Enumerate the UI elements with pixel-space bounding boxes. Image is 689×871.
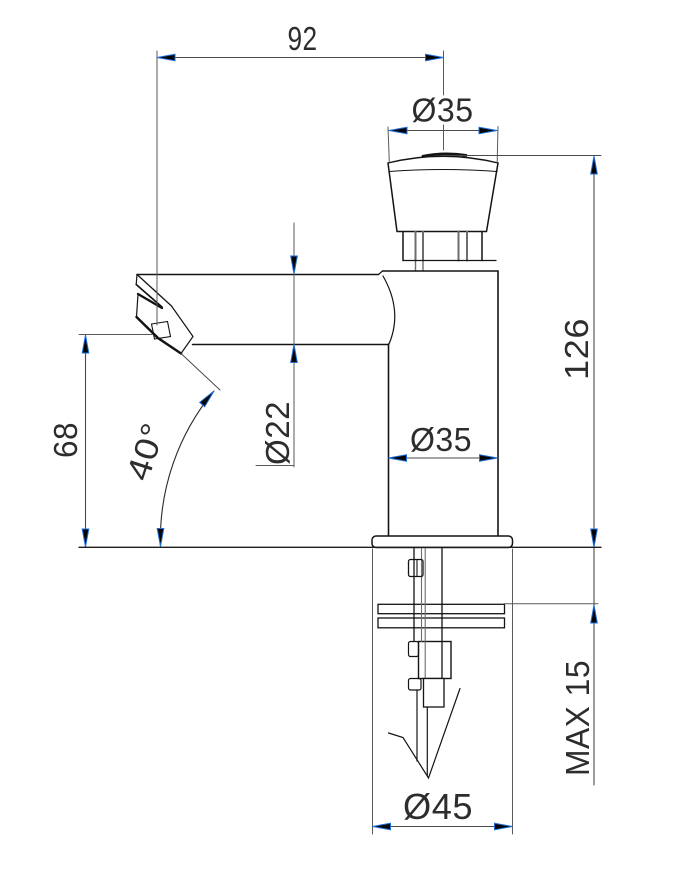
drawing-page: 92 Ø35 126 Ø22 (0, 0, 689, 871)
base-flange (372, 536, 513, 548)
arrowhead (200, 389, 217, 407)
spout-body-fillet (383, 276, 395, 344)
arrowhead (480, 455, 498, 462)
button-rim (389, 170, 497, 172)
valve-block (424, 679, 445, 708)
dim-body-diameter: Ø35 (389, 421, 498, 461)
spout (136, 275, 388, 354)
shank-clip (409, 560, 424, 577)
arrowhead (389, 455, 407, 462)
arrowhead (591, 156, 598, 174)
arrowhead (479, 127, 497, 134)
arrowhead (373, 823, 391, 830)
body-column (379, 271, 499, 536)
mounting-nut (419, 642, 452, 679)
push-button (388, 154, 498, 232)
dim-max-panel-thickness: MAX 15 (504, 604, 598, 776)
dimension-annotations: 92 Ø35 126 Ø22 (47, 20, 601, 834)
arrowhead (495, 823, 513, 830)
dim-width-92: 92 (157, 20, 444, 325)
dimension-label-max-15: MAX 15 (559, 660, 596, 776)
arrowhead (157, 529, 164, 547)
arrowhead (591, 529, 598, 547)
arrowhead (157, 54, 175, 61)
mounting-washer-top (378, 604, 505, 613)
mounting-washer-bottom (378, 618, 505, 628)
collar-slot-tails (416, 261, 424, 272)
dimension-label-body-diameter: Ø35 (410, 421, 472, 458)
aerator-left-edge (137, 294, 139, 317)
dimension-label-68: 68 (47, 422, 84, 458)
dim-button-diameter: Ø35 (388, 92, 498, 163)
button-dome (388, 156, 498, 163)
arrowhead (82, 529, 89, 547)
arrowhead (291, 256, 298, 274)
dimension-label-button-diameter: Ø35 (412, 92, 474, 129)
nut-side-tab-top (409, 642, 419, 657)
arrowhead (389, 127, 407, 134)
faucet-outline (136, 154, 512, 778)
arrowhead (591, 605, 598, 623)
under-deck-assembly (378, 548, 505, 778)
shoulder-chamfer (379, 271, 383, 275)
aerator-right-edge (172, 306, 194, 354)
collar-slots (416, 232, 468, 261)
dim-spout-angle: 40° (119, 354, 220, 547)
dimension-label-spout-diameter: Ø22 (259, 401, 296, 465)
button-collar (403, 232, 496, 272)
arrowhead (291, 345, 298, 363)
spout-axis-line (181, 354, 220, 391)
angle-arc (160, 391, 214, 547)
faucet-technical-drawing: 92 Ø35 126 Ø22 (0, 0, 689, 871)
dimension-label-angle: 40° (119, 418, 172, 485)
spout-tip-face (136, 275, 137, 285)
dimension-label-base-diameter: Ø45 (403, 786, 473, 827)
arrowhead (82, 335, 89, 353)
aerator-insert (152, 322, 171, 340)
arrowhead (426, 54, 444, 61)
dimension-label-92: 92 (288, 20, 318, 57)
dimension-label-126: 126 (558, 318, 595, 380)
button-sides (388, 163, 498, 232)
nut-side-tab-bottom (409, 679, 422, 691)
flange (372, 536, 513, 548)
